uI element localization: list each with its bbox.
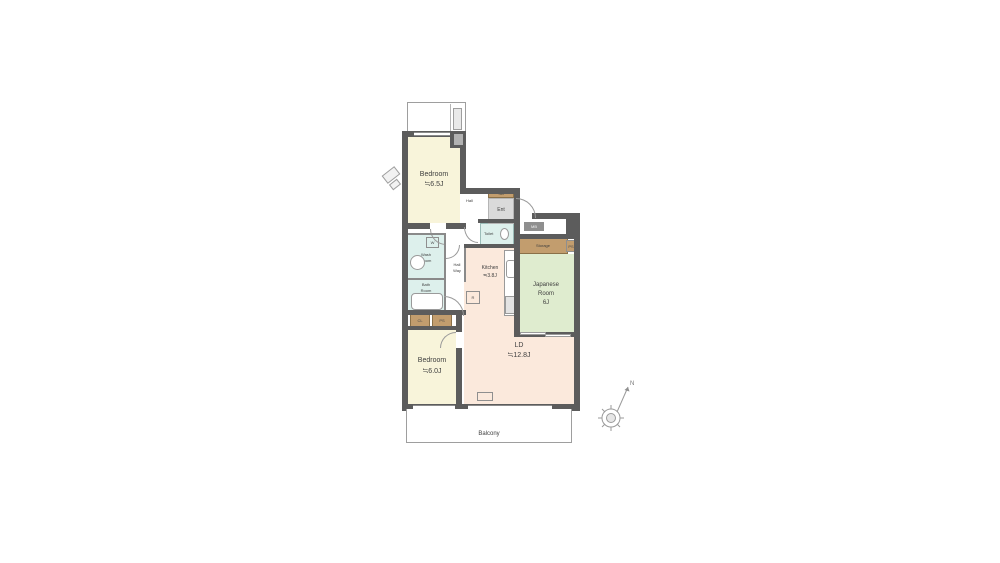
refrigerator-box: R: [466, 291, 480, 304]
wall-hall-top: [460, 188, 516, 194]
compass-north-label: N: [630, 381, 634, 387]
hallway-line2: Way: [450, 268, 464, 274]
balcony-outline: Balcony: [406, 409, 572, 443]
closet-label: CL: [417, 318, 422, 323]
door-arc-ld: [444, 296, 464, 316]
room-japanese: Japanese Room 6J: [518, 254, 574, 334]
bedroom-bottom-size: ≒6.0J: [422, 367, 441, 378]
hallway-label: Hall Way: [450, 262, 464, 274]
bedroom-bottom-name: Bedroom: [418, 356, 446, 367]
room-storage: Storage: [518, 238, 568, 254]
wash-basin: [410, 255, 425, 270]
bedroom-top-name: Bedroom: [420, 170, 448, 181]
bath-tub: [411, 293, 443, 310]
bedroom-top-size: ≒6.5J: [424, 180, 443, 191]
washer-label: W: [431, 240, 435, 245]
japanese-size: 6J: [543, 299, 549, 308]
toilet-label: Toilet: [484, 231, 493, 237]
door-arc-toilet: [464, 227, 478, 243]
pillar-inset: [454, 134, 463, 145]
japanese-line1: Japanese: [533, 281, 559, 290]
pipe-space-right-label: PS: [568, 244, 573, 249]
wall-kitchen-top: [464, 244, 516, 248]
ld-name: LD: [515, 341, 524, 352]
door-arc-entrance: [516, 198, 536, 218]
pipe-space-bedroom-label: PS: [439, 318, 444, 323]
meter-box-label: MB: [531, 224, 537, 229]
ld-size: ≒12.8J: [508, 351, 531, 362]
balcony-label: Balcony: [478, 431, 499, 437]
hall-text: Hall: [466, 198, 473, 203]
door-arc-wash: [446, 245, 460, 259]
sliding-door-japanese-1: [520, 332, 546, 335]
ld-wall-panel: [477, 392, 493, 401]
wall-bedroom-bottom-right: [456, 310, 462, 406]
hall-label: Hall: [466, 198, 473, 203]
wall-kitchen-left: [464, 248, 466, 282]
wall-bedroom-bottom-top: [408, 326, 458, 330]
toilet-bowl: [500, 228, 509, 240]
window-bedroom-top: [414, 132, 452, 136]
refrigerator-label: R: [472, 295, 475, 300]
wall-wash-top: [408, 233, 446, 235]
sliding-door-japanese-2: [545, 334, 571, 337]
floor-plan-canvas: Bedroom ≒6.5J LD ≒12.8J Kitchen ≒3.8J Ja…: [0, 0, 1000, 563]
wall-left: [402, 131, 408, 410]
top-balcony-ac-unit: [453, 108, 462, 130]
storage-label: Storage: [536, 243, 550, 249]
room-bedroom-top: Bedroom ≒6.5J: [408, 137, 460, 223]
wall-wash-bath-divider: [408, 278, 446, 280]
wall-right: [574, 213, 580, 410]
wall-corridor-bottom: [520, 234, 574, 239]
japanese-line2: Room: [538, 290, 554, 299]
wall-toilet-top: [478, 219, 516, 223]
compass-icon: N: [588, 376, 640, 436]
entrance-label: Ent: [497, 207, 505, 215]
meter-box: MB: [524, 222, 544, 231]
door-gap-bedroom-bottom: [456, 332, 462, 348]
